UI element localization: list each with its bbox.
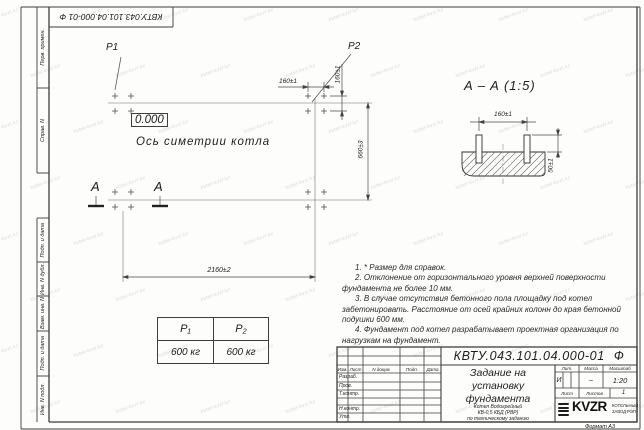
dim-660: 660±3 xyxy=(358,138,365,162)
col-header-izm: Изм. xyxy=(337,365,348,373)
note-2: 2. Отклонение от горизонтального уровня … xyxy=(342,273,636,294)
scale-value: 1:20 xyxy=(603,372,637,388)
drawing-sheet: kotel-kvzr.kzkotel-kvzr.kzkotel-kvzr.kzk… xyxy=(0,0,644,430)
load-table-header-p1: P₁ xyxy=(158,318,214,341)
margin-label-sprav-n: Справ. N xyxy=(37,88,49,173)
plan-view-lines xyxy=(88,54,372,282)
margin-label-inv-dubl: Инв. N дубл. xyxy=(37,262,49,296)
load-table: P₁ P₂ 600 кг 600 кг xyxy=(157,317,269,364)
col-header-list: Лист xyxy=(348,365,363,373)
list-label: Лист xyxy=(555,388,579,398)
dim-2160: 2160±2 xyxy=(194,267,244,274)
anchor-bolt xyxy=(476,135,482,163)
margin-label-podp-data-1: Подп. и дата xyxy=(37,218,49,262)
margin-label-text: Инв. N дубл. xyxy=(40,263,46,295)
section-mark-letter-left: A xyxy=(91,179,100,194)
dim-50: 50±1 xyxy=(548,154,555,178)
margin-label-text: Подп. и дата xyxy=(40,336,46,370)
concrete-hatch xyxy=(462,152,545,176)
row-label-nkontr: Н.контр. xyxy=(339,406,360,412)
dim-160-section: 160±1 xyxy=(480,111,526,118)
row-label-razrab: Разраб. xyxy=(339,374,357,380)
logo-caption-line2: ЗАВОД РЭП xyxy=(612,409,636,414)
margin-label-inv-podl: Инв. N подл. xyxy=(37,376,49,422)
margin-label-vzam-inv: Взам. инв. N xyxy=(37,296,49,331)
drawing-subtitle-line3: по техническому заданию xyxy=(441,416,555,422)
drawing-title-line1: Задание на xyxy=(441,366,555,379)
margin-label-perv-primen: Перв. примен. xyxy=(37,7,49,88)
margin-label-text: Перв. примен. xyxy=(40,29,46,66)
mass-value: – xyxy=(579,372,603,388)
load-table-value-p1: 600 кг xyxy=(158,341,214,363)
load-table-value-p2: 600 кг xyxy=(214,341,268,363)
listov-label: Листов xyxy=(579,388,610,398)
note-4: 4. Фундамент под котел разрабатывает про… xyxy=(342,325,636,346)
lit-header: Лит. xyxy=(555,365,579,372)
load-table-header-p2: P₂ xyxy=(214,318,268,341)
scale-header: Масштаб xyxy=(603,365,637,372)
col-header-podp: Подп. xyxy=(400,365,424,373)
note-3: 3. В случае отсутствия бетонного пола пл… xyxy=(342,294,636,325)
row-label-tkontr: Т.контр. xyxy=(339,391,359,397)
margin-label-podp-data-2: Подп. и дата xyxy=(37,331,49,376)
title-block-doc-number: КВТУ.043.101.04.000-01 Ф xyxy=(441,347,637,365)
section-view-title: A – A (1:5) xyxy=(464,78,536,93)
note-1: 1. * Размер для справок. xyxy=(342,263,636,273)
boiler-axis-caption: Ось симетрии котла xyxy=(136,136,270,148)
row-label-utv: Утв. xyxy=(339,414,350,420)
format-label: Формат А3 xyxy=(570,423,630,430)
anchor-bolt-marks xyxy=(112,93,327,210)
margin-label-text: Справ. N xyxy=(40,119,46,142)
row-label-prov: Пров. xyxy=(339,383,352,389)
col-header-data: Дата xyxy=(424,365,441,373)
logo-text: KVZR xyxy=(572,399,607,414)
logo-caption-line1: КОТЕЛЬНЫЙ xyxy=(612,403,638,408)
margin-label-text: Инв. N подл. xyxy=(40,383,46,415)
dim-160-side: 160±1 xyxy=(335,63,342,87)
elevation-mark: 0.000 xyxy=(131,113,168,127)
top-stamp-doc-number: КВТУ.043.101.04.000-01 Ф xyxy=(49,7,173,27)
anchor-bolt xyxy=(524,135,530,163)
margin-label-text: Подп. и дата xyxy=(40,223,46,257)
notes-block: 1. * Размер для справок. 2. Отклонение о… xyxy=(342,263,636,346)
dim-160-top: 160±1 xyxy=(279,78,297,85)
drawing-title-line2: установку xyxy=(441,379,555,392)
listov-value: 1 xyxy=(610,388,637,398)
section-mark-letter-right: A xyxy=(154,179,163,194)
mass-header: Масса xyxy=(579,365,603,372)
lit-value: И xyxy=(555,372,563,388)
col-header-ndocum: N докум. xyxy=(363,365,400,373)
logo-mark-icon xyxy=(558,403,569,416)
margin-label-text: Взам. инв. N xyxy=(40,297,46,329)
load-point-label-p1: P1 xyxy=(106,42,118,53)
load-point-label-p2: P2 xyxy=(348,41,360,52)
